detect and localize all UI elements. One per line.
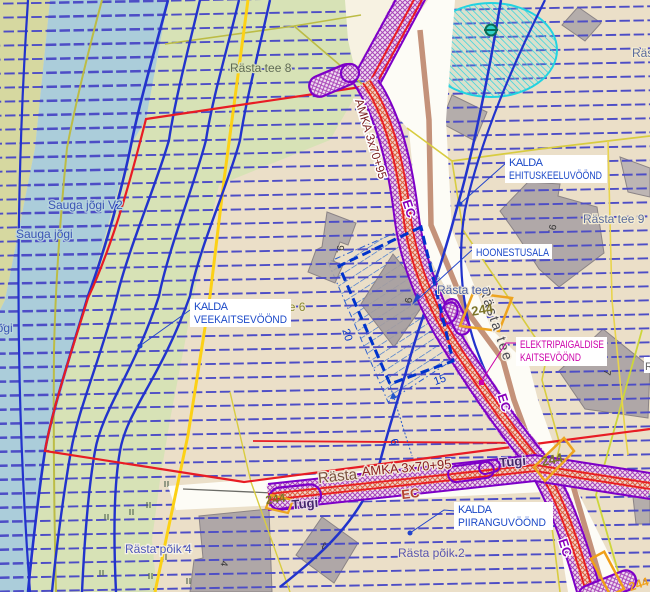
svg-text:Rästa põik 2: Rästa põik 2 <box>398 546 465 560</box>
svg-text:EC: EC <box>401 485 421 502</box>
svg-text:KALDA: KALDA <box>509 157 544 169</box>
svg-text:Sauga jõgi V2: Sauga jõgi V2 <box>48 198 123 212</box>
svg-text:KAITSEVÖÖND: KAITSEVÖÖND <box>520 352 581 364</box>
svg-text:jõgi: jõgi <box>0 321 13 335</box>
svg-text:HOONESTUSALA: HOONESTUSALA <box>476 247 550 259</box>
svg-text:Rästa tee 9: Rästa tee 9 <box>583 212 645 226</box>
svg-text:Rästa põik 4: Rästa põik 4 <box>125 542 192 556</box>
svg-text:PIIRANGUVÖÖND: PIIRANGUVÖÖND <box>458 517 546 529</box>
svg-text:Tugi: Tugi <box>499 453 527 470</box>
svg-text:Rästa tee 8: Rästa tee 8 <box>230 61 292 75</box>
svg-text:244: 244 <box>265 491 287 508</box>
svg-text:9.: 9. <box>334 245 346 254</box>
svg-text:Rästa: Rästa <box>632 46 650 60</box>
svg-text:KALDA: KALDA <box>458 504 493 516</box>
svg-text:EHITUSKEELUVÖÖND: EHITUSKEELUVÖÖND <box>509 170 602 182</box>
svg-text:VEEKAITSEVÖÖND: VEEKAITSEVÖÖND <box>194 314 287 326</box>
svg-text:Rästa tee: Rästa tee <box>437 283 489 297</box>
svg-text:ELEKTRIPAIGALDISE: ELEKTRIPAIGALDISE <box>520 339 604 351</box>
svg-text:Sauga jõgi: Sauga jõgi <box>16 227 73 241</box>
svg-text:Tugi: Tugi <box>291 495 319 512</box>
svg-text:KALDA: KALDA <box>194 301 229 313</box>
svg-text:R: R <box>645 361 650 373</box>
